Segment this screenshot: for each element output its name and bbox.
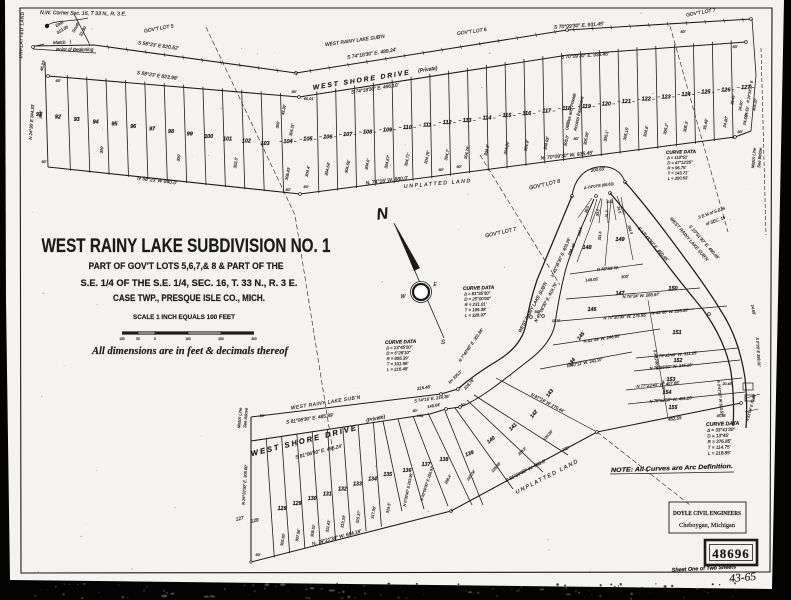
svg-text:D = 13°45': D = 13°45' (707, 433, 729, 439)
svg-text:L = 328.97': L = 328.97' (465, 312, 487, 318)
svg-text:120: 120 (602, 101, 611, 107)
svg-text:112: 112 (443, 120, 452, 126)
svg-text:109: 109 (383, 127, 393, 133)
svg-text:102: 102 (242, 139, 251, 145)
svg-text:4.92: 4.92 (417, 414, 424, 418)
svg-text:60': 60' (260, 414, 265, 418)
svg-text:134: 134 (368, 477, 377, 483)
svg-text:60': 60' (737, 129, 742, 134)
svg-text:149: 149 (615, 237, 625, 243)
svg-text:Point of Beginning: Point of Beginning (56, 47, 94, 52)
svg-text:117: 117 (542, 109, 552, 115)
svg-text:4.92: 4.92 (607, 200, 614, 204)
svg-text:31.2: 31.2 (605, 210, 609, 217)
svg-text:PART OF GOV'T LOTS 5,6,7,& 8 &: PART OF GOV'T LOTS 5,6,7,& 8 & PART OF T… (89, 261, 284, 271)
svg-text:60': 60' (413, 409, 418, 413)
svg-text:122: 122 (642, 97, 651, 103)
svg-text:105: 105 (303, 137, 313, 143)
svg-text:SCALE 1 INCH EQUALS 100 F: SCALE 1 INCH EQUALS 100 FEET (133, 315, 235, 321)
svg-text:115: 115 (503, 113, 513, 119)
svg-text:WEST RAINY LAKE SUBDIVISION NO: WEST RAINY LAKE SUBDIVISION NO. 1 (42, 235, 331, 257)
svg-text:108: 108 (363, 130, 373, 136)
svg-text:300': 300' (621, 274, 629, 280)
svg-text:DOYLE CIVIL ENGINEERS: DOYLE CIVIL ENGINEERS (673, 510, 741, 517)
svg-text:50: 50 (136, 337, 140, 341)
svg-text:95: 95 (111, 122, 118, 128)
svg-text:20.45: 20.45 (722, 382, 732, 386)
svg-text:60': 60' (456, 164, 461, 169)
svg-text:111: 111 (423, 123, 431, 129)
svg-text:Δ = 33°41'30": Δ = 33°41'30" (706, 427, 735, 433)
svg-text:60': 60' (680, 29, 685, 34)
svg-text:155: 155 (669, 405, 678, 411)
svg-text:98: 98 (168, 129, 174, 135)
svg-text:311.6: 311.6 (598, 231, 603, 240)
svg-text:60.01': 60.01' (304, 96, 315, 101)
svg-text:L = 216.48': L = 216.48' (387, 366, 409, 372)
svg-text:131: 131 (323, 491, 332, 497)
svg-text:94: 94 (93, 119, 99, 125)
svg-text:97: 97 (149, 127, 156, 133)
svg-text:135: 135 (383, 472, 392, 478)
svg-text:92: 92 (55, 114, 61, 120)
svg-text:96: 96 (130, 124, 137, 130)
svg-text:104: 104 (283, 139, 292, 145)
svg-text:128: 128 (278, 506, 287, 512)
svg-text:119: 119 (582, 104, 592, 110)
svg-text:151: 151 (672, 330, 681, 336)
svg-text:L = 200.63': L = 200.63' (668, 175, 689, 181)
svg-text:48696: 48696 (712, 546, 750, 561)
svg-text:80': 80' (573, 136, 578, 141)
svg-text:Cheboygan, Michigan: Cheboygan, Michigan (679, 523, 735, 529)
svg-text:60': 60' (303, 184, 308, 189)
svg-text:66': 66' (535, 310, 540, 314)
svg-text:123: 123 (662, 94, 671, 100)
svg-text:60': 60' (285, 187, 290, 192)
svg-text:CASE TWP., PRESQUE ISLE CO., M: CASE TWP., PRESQUE ISLE CO., MICH. (113, 293, 265, 303)
svg-text:91: 91 (36, 112, 42, 118)
svg-text:60': 60' (256, 553, 261, 557)
svg-text:L = 218.85': L = 218.85' (708, 450, 731, 456)
svg-text:T = 114.75': T = 114.75' (708, 444, 731, 450)
svg-text:116: 116 (522, 111, 532, 117)
svg-text:200: 200 (218, 337, 224, 341)
svg-text:113: 113 (463, 118, 472, 124)
svg-text:100: 100 (119, 337, 125, 341)
svg-text:Match: Match (53, 40, 66, 45)
svg-text:130: 130 (308, 496, 317, 502)
svg-text:106: 106 (323, 134, 333, 140)
svg-text:43-65: 43-65 (729, 571, 757, 585)
svg-text:126: 126 (721, 87, 731, 93)
svg-text:121: 121 (622, 99, 631, 105)
svg-text:132: 132 (338, 486, 347, 492)
svg-text:150: 150 (668, 286, 678, 292)
svg-text:300': 300' (176, 154, 182, 162)
svg-text:125: 125 (701, 90, 711, 96)
svg-text:11.36: 11.36 (552, 319, 560, 323)
svg-text:110: 110 (403, 125, 412, 131)
svg-text:107: 107 (343, 132, 353, 138)
svg-text:138: 138 (440, 457, 449, 463)
svg-text:114: 114 (483, 116, 492, 122)
svg-text:300': 300' (99, 146, 105, 154)
svg-text:All dimensions are in feet & d: All dimensions are in feet & decimals th… (91, 346, 290, 357)
svg-text:60': 60' (461, 403, 466, 407)
svg-text:146: 146 (588, 307, 597, 313)
svg-text:60': 60' (41, 159, 46, 164)
svg-text:99: 99 (187, 132, 193, 138)
svg-text:60': 60' (732, 44, 737, 49)
svg-text:100: 100 (185, 337, 191, 341)
svg-text:S.E. 1/4 OF THE S.E. 1/4, SEC.: S.E. 1/4 OF THE S.E. 1/4, SEC. 16, T. 33… (81, 278, 298, 288)
svg-text:148: 148 (582, 245, 592, 251)
svg-text:60': 60' (55, 78, 60, 83)
svg-text:100: 100 (204, 134, 213, 140)
svg-text:S: S (441, 340, 445, 346)
svg-text:300: 300 (251, 337, 257, 341)
svg-text:0: 0 (154, 337, 156, 341)
svg-text:133: 133 (353, 482, 362, 488)
svg-text:60': 60' (438, 167, 443, 172)
svg-text:60': 60' (291, 89, 296, 94)
svg-text:129: 129 (293, 501, 302, 507)
svg-text:101: 101 (223, 136, 232, 142)
svg-text:103: 103 (261, 141, 270, 147)
svg-text:93: 93 (74, 117, 80, 123)
